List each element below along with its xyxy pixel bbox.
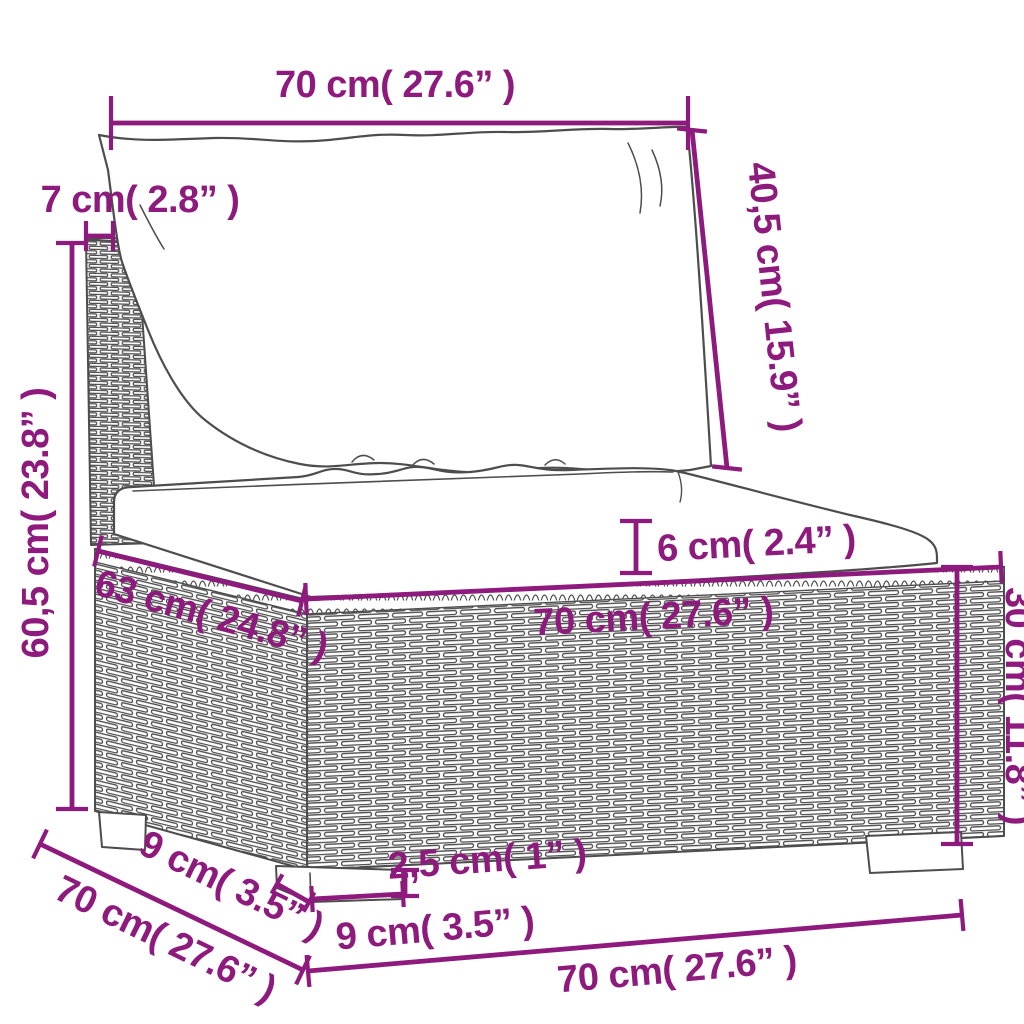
dim-total-height xyxy=(56,243,88,809)
label-base-height: 30 cm( 11.8” ) xyxy=(997,587,1024,825)
base-box xyxy=(95,549,1004,870)
foot-back-left xyxy=(99,812,146,850)
diagram-canvas: 70 cm( 27.6” ) 7 cm( 2.8” ) 40,5 cm( 15.… xyxy=(0,0,1024,1024)
label-top-width: 70 cm( 27.6” ) xyxy=(275,64,515,106)
label-back-cushion-height: 40,5 cm( 15.9” ) xyxy=(739,160,809,434)
product-dimension-diagram: 70 cm( 27.6” ) 7 cm( 2.8” ) 40,5 cm( 15.… xyxy=(0,0,1024,1024)
sofa-drawing xyxy=(86,127,1004,902)
label-foot-width: 9 cm( 3.5” ) xyxy=(334,899,536,958)
label-total-height: 60,5 cm( 23.8” ) xyxy=(15,388,57,659)
foot-front-right xyxy=(866,832,963,873)
label-back-post-width: 7 cm( 2.8” ) xyxy=(41,179,240,221)
